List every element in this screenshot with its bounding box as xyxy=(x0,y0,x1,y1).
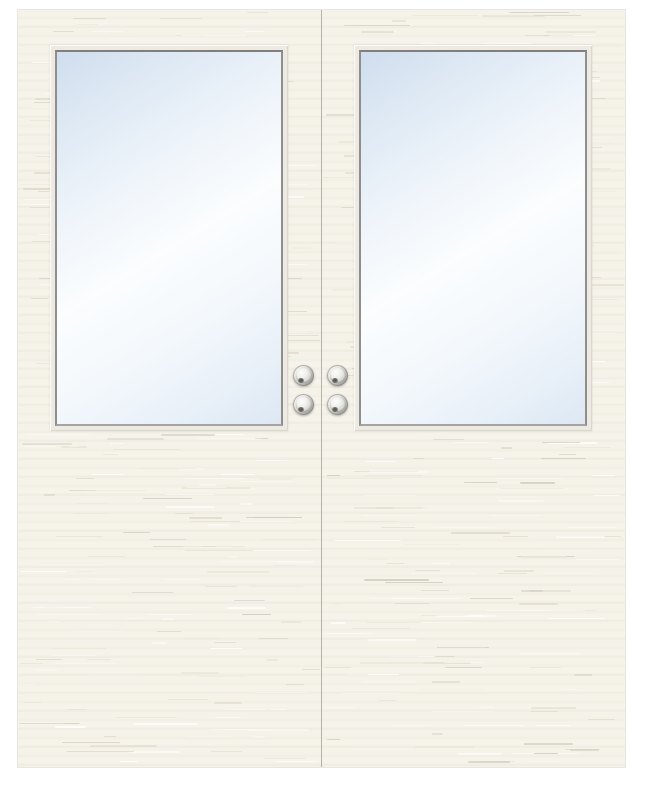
door-grain-dash xyxy=(107,438,165,440)
door-knob-bottom-right xyxy=(327,394,348,415)
door-grain-dash xyxy=(379,700,396,701)
door-knob-bottom-left xyxy=(293,394,314,415)
door-grain-dash xyxy=(138,468,195,469)
door-grain-dash xyxy=(76,478,95,479)
door-grain-dash xyxy=(255,692,309,693)
door-grain-dash xyxy=(421,689,483,690)
door-grain-dash xyxy=(67,751,134,752)
door-grain-dash xyxy=(362,681,416,683)
door-grain-dash xyxy=(354,507,393,509)
door-grain-dash xyxy=(103,454,118,455)
door-grain-dash xyxy=(160,18,202,19)
door-grain-dash xyxy=(198,438,261,440)
door-grain-dash xyxy=(418,656,441,657)
door-grain-dash xyxy=(534,753,558,754)
door-grain-dash xyxy=(536,725,572,726)
door-grain-dash xyxy=(190,521,240,522)
door-grain-dash xyxy=(82,490,146,491)
door-grain-dash xyxy=(431,563,450,564)
door-grain-dash xyxy=(530,667,562,668)
door-grain-dash xyxy=(157,631,182,632)
door-grain-dash xyxy=(209,729,257,730)
door-grain-dash xyxy=(184,478,246,479)
door-grain-dash xyxy=(439,647,485,648)
door-grain-dash xyxy=(261,539,318,540)
door-grain-dash xyxy=(548,618,605,619)
door-grain-dash xyxy=(457,753,503,755)
door-grain-dash xyxy=(463,725,523,726)
door-grain-dash xyxy=(559,454,576,455)
door-grain-dash xyxy=(276,561,314,563)
door-grain-dash xyxy=(18,684,37,685)
door-grain-dash xyxy=(393,598,460,599)
door-grain-dash xyxy=(491,515,540,516)
door-grain-dash xyxy=(66,579,79,580)
door-grain-dash xyxy=(363,475,421,476)
door-grain-dash xyxy=(529,590,571,592)
door-grain-dash xyxy=(228,556,239,558)
door-grain-dash xyxy=(256,460,287,461)
door-grain-dash xyxy=(327,475,340,476)
door-grain-dash xyxy=(436,615,484,617)
door-grain-dash xyxy=(568,527,616,528)
door-grain-dash xyxy=(324,667,350,668)
door-grain-dash xyxy=(348,674,399,675)
door-grain-dash xyxy=(486,610,551,611)
door-grain-dash xyxy=(369,471,430,473)
door-grain-dash xyxy=(164,579,198,580)
door-grain-dash xyxy=(541,458,586,459)
door-grain-dash xyxy=(220,729,270,730)
door-grain-dash xyxy=(341,693,399,694)
door-grain-dash xyxy=(129,751,180,753)
door-grain-dash xyxy=(504,570,535,572)
door-grain-dash xyxy=(596,468,610,469)
door-grain-dash xyxy=(524,743,573,745)
glass-pane-left xyxy=(55,50,283,426)
door-grain-dash xyxy=(53,31,74,32)
door-grain-dash xyxy=(252,550,311,551)
door-grain-dash xyxy=(133,723,198,725)
door-grain-dash xyxy=(585,610,596,611)
door-grain-dash xyxy=(531,707,576,709)
door-grain-dash xyxy=(53,648,106,649)
door-grain-dash xyxy=(395,603,429,604)
door-grain-dash xyxy=(561,689,578,690)
door-grain-dash xyxy=(204,434,245,435)
door-grain-dash xyxy=(211,751,242,752)
door-grain-dash xyxy=(92,31,124,32)
door-grain-dash xyxy=(464,482,497,483)
door-grain-dash xyxy=(405,544,461,545)
door-grain-dash xyxy=(556,536,606,538)
door-grain-dash xyxy=(88,556,124,557)
door-grain-dash xyxy=(19,723,79,724)
door-grain-dash xyxy=(214,642,236,643)
door-grain-dash xyxy=(543,573,595,574)
double-door-assembly xyxy=(18,10,625,767)
door-grain-dash xyxy=(44,494,55,496)
door-grain-dash xyxy=(207,524,230,526)
door-grain-dash xyxy=(76,571,94,572)
door-grain-dash xyxy=(202,546,246,547)
door-grain-dash xyxy=(545,31,595,33)
door-grain-dash xyxy=(530,761,562,762)
door-grain-dash xyxy=(21,571,68,572)
door-grain-dash xyxy=(240,503,253,505)
door-grain-dash xyxy=(534,15,581,16)
door-grain-dash xyxy=(286,684,303,685)
door-grain-dash xyxy=(123,532,150,533)
door-grain-dash xyxy=(244,31,266,32)
door-grain-dash xyxy=(327,478,392,479)
door-grain-dash xyxy=(219,561,280,562)
door-grain-dash xyxy=(22,443,73,445)
door-grain-dash xyxy=(415,746,475,748)
door-grain-dash xyxy=(165,494,214,495)
door-grain-dash xyxy=(465,615,497,617)
door-grain-dash xyxy=(517,556,575,557)
door-grain-dash xyxy=(267,659,278,661)
door-grain-dash xyxy=(344,521,399,522)
door-grain-dash xyxy=(73,18,106,19)
door-grain-dash xyxy=(225,709,267,710)
door-grain-dash xyxy=(470,598,513,599)
door-render-canvas xyxy=(0,0,650,790)
door-grain-dash xyxy=(484,43,532,44)
door-grain-dash xyxy=(370,598,421,599)
door-knob-top-right xyxy=(327,365,348,386)
door-grain-dash xyxy=(426,43,493,44)
door-grain-dash xyxy=(187,736,233,737)
door-grain-dash xyxy=(375,507,423,509)
door-grain-dash xyxy=(360,662,424,664)
door-grain-dash xyxy=(349,674,368,675)
door-grain-dash xyxy=(185,550,253,551)
door-grain-dash xyxy=(520,482,556,484)
door-grain-dash xyxy=(178,468,205,470)
door-grain-dash xyxy=(480,761,515,762)
door-grain-dash xyxy=(564,447,611,448)
door-grain-dash xyxy=(181,672,219,674)
door-grain-dash xyxy=(592,475,615,476)
door-grain-dash xyxy=(247,729,309,731)
door-grain-dash xyxy=(110,443,125,444)
door-grain-dash xyxy=(80,626,114,627)
door-grain-dash xyxy=(413,458,425,459)
door-grain-dash xyxy=(326,633,373,634)
door-grain-dash xyxy=(150,539,186,540)
door-grain-dash xyxy=(409,622,472,623)
door-grain-dash xyxy=(24,702,42,703)
door-grain-dash xyxy=(221,474,254,475)
door-grain-dash xyxy=(557,536,622,537)
door-grain-dash xyxy=(501,447,512,449)
door-grain-dash xyxy=(453,442,488,443)
door-grain-dash xyxy=(302,669,320,670)
door-grain-dash xyxy=(536,550,593,551)
door-grain-dash xyxy=(285,165,318,166)
door-grain-dash xyxy=(498,573,527,574)
door-grain-dash xyxy=(189,517,222,519)
door-grain-dash xyxy=(176,35,203,36)
door-grain-dash xyxy=(432,733,443,735)
door-grain-dash xyxy=(387,563,403,564)
door-grain-dash xyxy=(62,742,120,743)
door-grain-dash xyxy=(501,488,563,489)
door-grain-dash xyxy=(247,12,268,13)
door-grain-dash xyxy=(246,517,288,518)
door-grain-dash xyxy=(207,571,270,573)
door-grain-dash xyxy=(26,434,90,435)
door-grain-dash xyxy=(433,439,464,440)
door-grain-dash xyxy=(183,638,220,639)
door-grain-dash xyxy=(516,610,574,611)
door-grain-dash xyxy=(67,709,87,710)
door-grain-dash xyxy=(381,527,415,528)
door-grain-dash xyxy=(109,38,134,39)
door-grain-dash xyxy=(120,761,138,762)
glass-pane-right xyxy=(359,50,587,426)
door-grain-dash xyxy=(423,662,472,664)
door-grain-dash xyxy=(20,663,43,664)
door-grain-dash xyxy=(48,621,61,622)
door-grain-dash xyxy=(366,622,422,623)
door-grain-dash xyxy=(352,628,409,629)
door-grain-dash xyxy=(468,761,510,763)
door-grain-dash xyxy=(35,669,59,671)
door-meeting-seam xyxy=(321,10,322,767)
door-grain-dash xyxy=(199,484,216,486)
door-grain-dash xyxy=(264,758,306,759)
door-grain-dash xyxy=(576,559,620,560)
door-grain-dash xyxy=(451,532,510,534)
door-grain-dash xyxy=(498,500,544,502)
door-grain-dash xyxy=(168,699,208,700)
window-frame-right xyxy=(354,45,592,431)
door-grain-dash xyxy=(205,586,237,587)
door-grain-dash xyxy=(115,717,177,718)
door-leaf-left xyxy=(18,10,321,767)
door-grain-dash xyxy=(383,31,397,32)
door-grain-dash xyxy=(24,446,56,447)
door-grain-dash xyxy=(525,35,551,36)
door-grain-dash xyxy=(75,503,107,504)
door-grain-dash xyxy=(544,35,573,36)
door-grain-dash xyxy=(542,442,581,443)
door-grain-dash xyxy=(531,711,558,712)
door-grain-dash xyxy=(415,570,440,571)
door-grain-dash xyxy=(113,449,180,450)
door-grain-dash xyxy=(198,676,245,677)
door-grain-dash xyxy=(331,622,347,624)
door-grain-dash xyxy=(367,559,387,560)
door-grain-dash xyxy=(234,600,265,601)
door-grain-dash xyxy=(521,653,582,654)
door-grain-dash xyxy=(74,513,108,514)
door-grain-dash xyxy=(334,540,400,541)
door-grain-dash xyxy=(175,513,193,514)
door-grain-dash xyxy=(54,663,117,664)
door-grain-dash xyxy=(432,681,460,683)
door-grain-dash xyxy=(162,618,176,620)
door-grain-dash xyxy=(239,521,293,522)
door-grain-dash xyxy=(513,753,578,754)
window-frame-left xyxy=(50,45,288,431)
door-grain-dash xyxy=(31,298,48,299)
door-grain-dash xyxy=(36,614,102,615)
door-grain-dash xyxy=(69,490,96,491)
door-grain-dash xyxy=(254,517,302,518)
door-grain-dash xyxy=(570,749,599,751)
door-grain-dash xyxy=(147,614,194,615)
door-grain-dash xyxy=(496,478,563,479)
door-grain-dash xyxy=(363,495,417,496)
door-grain-dash xyxy=(361,31,394,33)
door-grain-dash xyxy=(241,481,294,482)
door-grain-dash xyxy=(55,726,87,728)
door-grain-dash xyxy=(255,438,268,439)
door-grain-dash xyxy=(565,749,600,750)
door-grain-dash xyxy=(183,546,233,548)
door-grain-dash xyxy=(365,461,397,462)
door-grain-dash xyxy=(227,607,266,609)
door-grain-dash xyxy=(127,618,143,619)
door-grain-dash xyxy=(61,446,87,448)
door-grain-dash xyxy=(492,458,505,459)
door-grain-dash xyxy=(77,24,99,25)
door-grain-dash xyxy=(479,707,494,708)
door-grain-dash xyxy=(250,586,302,587)
door-grain-dash xyxy=(52,655,97,656)
door-grain-dash xyxy=(275,761,319,762)
door-grain-dash xyxy=(435,656,455,657)
door-grain-dash xyxy=(413,15,478,16)
door-grain-dash xyxy=(437,647,489,648)
door-grain-dash xyxy=(90,745,157,747)
door-grain-dash xyxy=(242,614,272,615)
door-grain-dash xyxy=(161,434,215,436)
door-grain-dash xyxy=(588,719,615,720)
door-grain-dash xyxy=(132,592,174,593)
door-grain-dash xyxy=(215,717,241,718)
door-grain-dash xyxy=(364,579,429,581)
door-grain-dash xyxy=(519,603,558,605)
door-grain-dash xyxy=(92,672,139,673)
door-grain-dash xyxy=(501,482,519,483)
door-grain-dash xyxy=(259,478,292,480)
door-grain-dash xyxy=(431,711,495,712)
door-grain-dash xyxy=(444,662,482,663)
door-grain-dash xyxy=(38,565,105,566)
door-grain-dash xyxy=(521,590,543,592)
door-grain-dash xyxy=(124,618,138,619)
door-grain-dash xyxy=(548,442,597,444)
door-grain-dash xyxy=(45,607,63,608)
door-grain-dash xyxy=(291,247,311,249)
door-grain-dash xyxy=(503,536,528,537)
door-grain-dash xyxy=(214,702,242,704)
door-grain-dash xyxy=(411,573,477,574)
door-grain-dash xyxy=(181,35,247,36)
door-grain-dash xyxy=(421,615,472,616)
door-grain-dash xyxy=(389,507,427,508)
door-knob-top-left xyxy=(293,365,314,386)
door-grain-dash xyxy=(210,648,242,649)
door-grain-dash xyxy=(182,487,250,489)
door-grain-dash xyxy=(74,631,123,632)
door-grain-dash xyxy=(259,638,288,639)
door-grain-dash xyxy=(68,446,79,447)
door-grain-dash xyxy=(352,749,412,750)
door-grain-dash xyxy=(422,433,448,434)
door-grain-dash xyxy=(153,546,216,547)
door-grain-dash xyxy=(527,540,540,541)
door-grain-dash xyxy=(385,582,443,583)
door-grain-dash xyxy=(509,12,569,13)
door-grain-dash xyxy=(187,487,226,488)
door-grain-dash xyxy=(521,556,566,558)
door-grain-dash xyxy=(420,43,434,44)
door-grain-dash xyxy=(390,656,434,657)
door-grain-dash xyxy=(593,495,620,496)
door-grain-dash xyxy=(91,579,124,580)
door-grain-dash xyxy=(362,515,416,516)
door-grain-dash xyxy=(36,659,63,660)
door-grain-dash xyxy=(421,590,449,591)
door-grain-dash xyxy=(166,506,215,508)
door-grain-dash xyxy=(433,527,495,528)
door-grain-dash xyxy=(271,709,286,710)
door-grain-dash xyxy=(143,498,191,499)
door-grain-dash xyxy=(65,723,80,724)
door-grain-dash xyxy=(151,642,167,644)
door-grain-dash xyxy=(548,35,595,36)
door-grain-dash xyxy=(574,674,592,676)
door-grain-dash xyxy=(33,607,91,608)
door-grain-dash xyxy=(354,471,418,472)
door-grain-dash xyxy=(393,725,430,726)
door-grain-dash xyxy=(92,474,124,475)
door-grain-dash xyxy=(392,20,405,22)
door-grain-dash xyxy=(274,565,298,566)
door-grain-dash xyxy=(87,659,111,660)
door-leaf-right xyxy=(322,10,625,767)
door-grain-dash xyxy=(281,621,301,623)
door-grain-dash xyxy=(367,639,417,641)
door-grain-dash xyxy=(323,707,356,708)
door-grain-dash xyxy=(104,736,116,737)
door-grain-dash xyxy=(331,603,343,604)
door-grain-dash xyxy=(482,15,545,17)
door-grain-dash xyxy=(252,736,266,738)
door-grain-dash xyxy=(344,25,410,26)
door-grain-dash xyxy=(327,739,341,740)
door-grain-dash xyxy=(445,667,482,668)
door-grain-dash xyxy=(56,536,103,537)
